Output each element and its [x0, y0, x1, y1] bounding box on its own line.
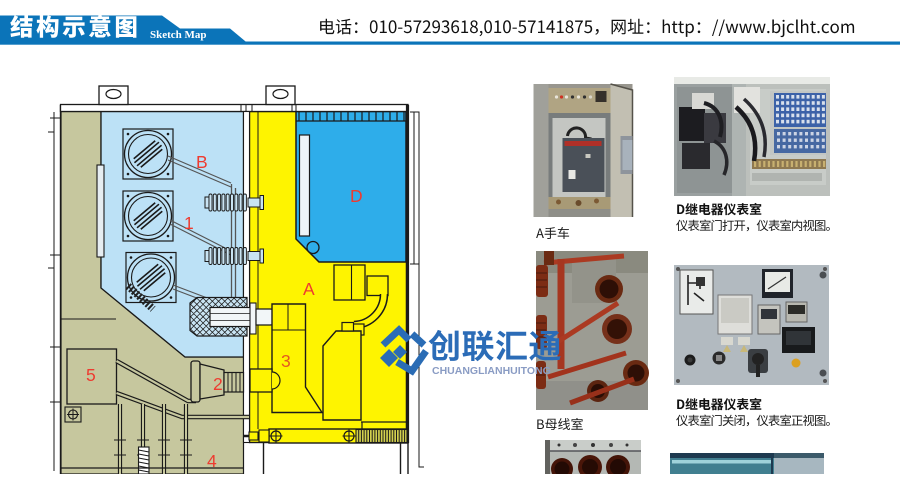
svg-text:Sketch Map: Sketch Map — [150, 29, 207, 41]
svg-text:4: 4 — [207, 451, 217, 471]
svg-text:A: A — [303, 279, 315, 299]
svg-text:2: 2 — [213, 374, 223, 394]
svg-text:CHUANGLIANHUITONG: CHUANGLIANHUITONG — [432, 365, 551, 377]
svg-text:1: 1 — [184, 213, 194, 233]
svg-text:3: 3 — [281, 351, 291, 371]
svg-text:5: 5 — [86, 365, 96, 385]
svg-text:D: D — [350, 186, 363, 206]
svg-text:B: B — [196, 152, 208, 172]
